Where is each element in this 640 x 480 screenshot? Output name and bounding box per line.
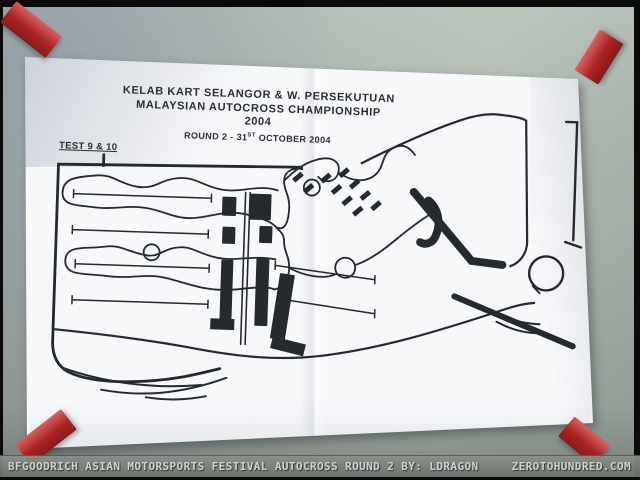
poster-content: KELAB KART SELANGOR & W. PERSEKUTUAN MAL… bbox=[0, 0, 640, 480]
banner-caption: BFGOODRICH ASIAN MOTORSPORTS FESTIVAL AU… bbox=[8, 460, 479, 473]
watermark-banner: BFGOODRICH ASIAN MOTORSPORTS FESTIVAL AU… bbox=[0, 455, 640, 477]
photo-frame: KELAB KART SELANGOR & W. PERSEKUTUAN MAL… bbox=[0, 0, 640, 480]
banner-site-watermark: ZEROTOHUNDRED.COM bbox=[512, 460, 631, 473]
poster-paper: KELAB KART SELANGOR & W. PERSEKUTUAN MAL… bbox=[0, 0, 640, 480]
track-map bbox=[19, 90, 599, 419]
